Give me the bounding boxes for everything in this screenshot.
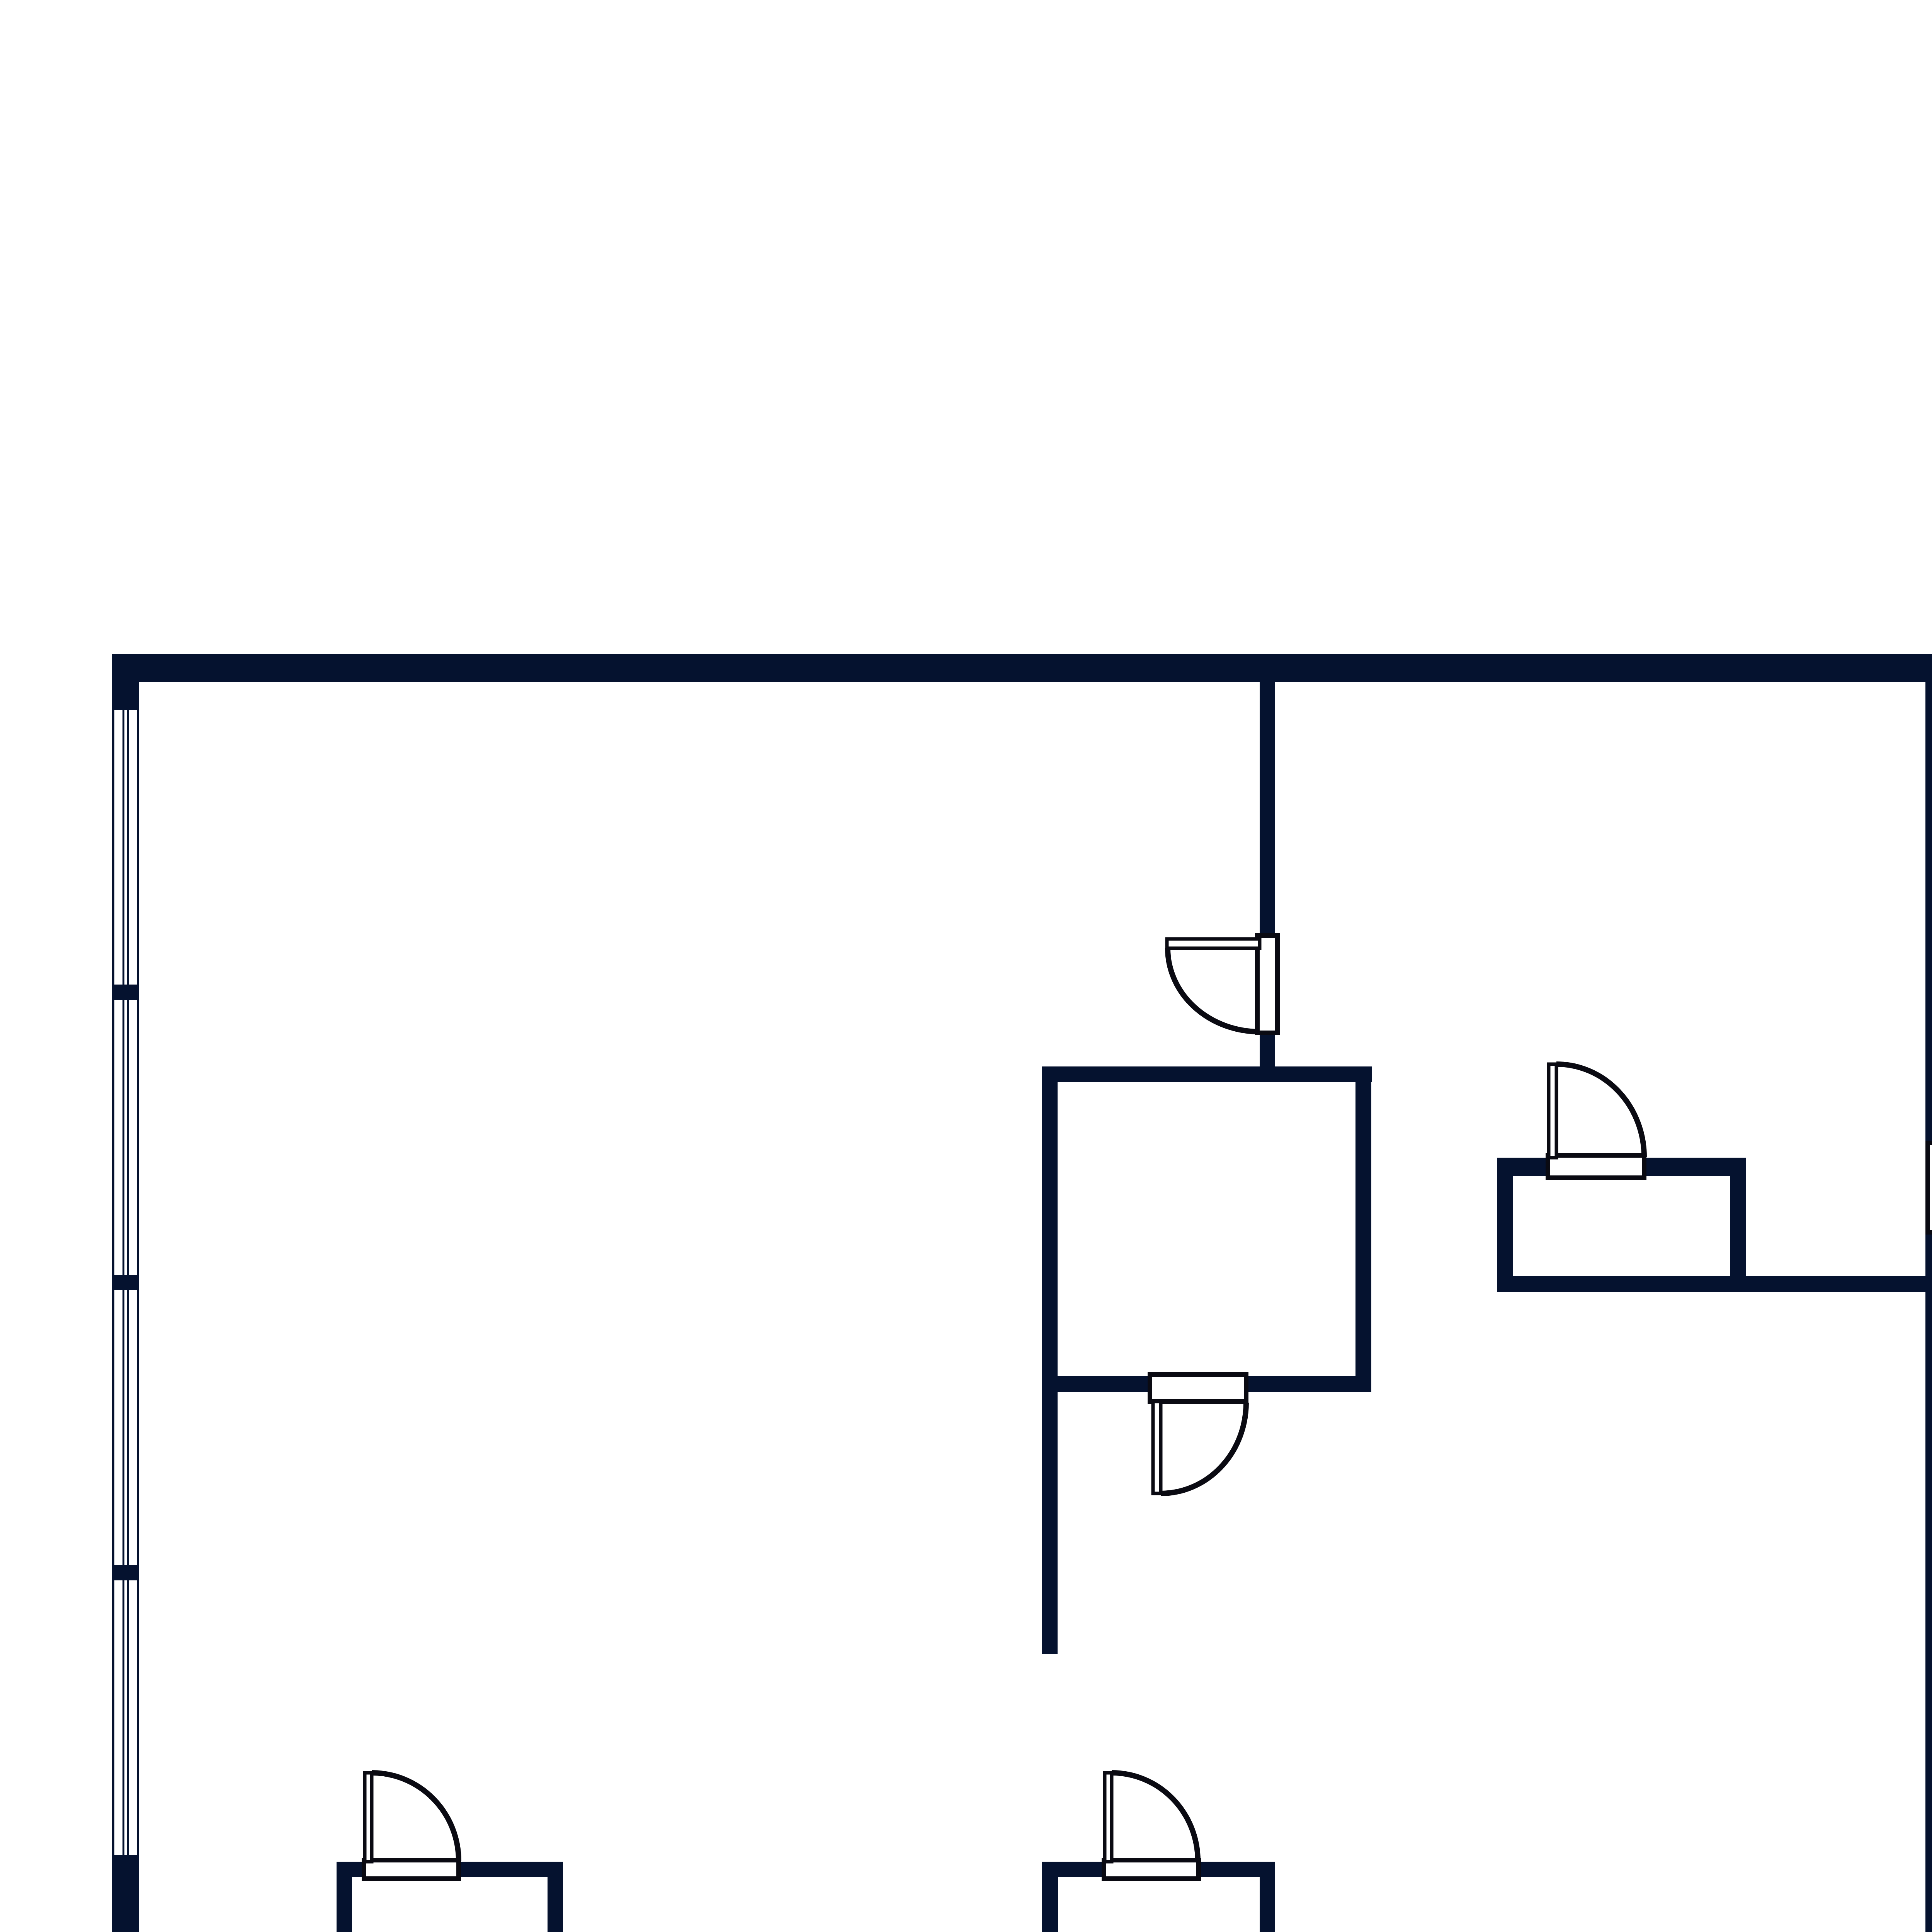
door-right-room [1548,1064,1644,1178]
wall-left-top [112,654,139,708]
wall-left-vestibule-right [548,1877,563,1932]
door-right-exterior-frame [1928,1143,1932,1232]
door-hall [1167,935,1277,1033]
wall-left-mullion-2 [112,1277,139,1288]
window-left-3 [112,1288,139,1567]
door-square-room-leaf [1153,1401,1161,1493]
floor-plan [0,0,1932,1932]
wall-square-room-top [1042,1066,1372,1082]
wall-right-room-left [1497,1158,1513,1292]
door-square-room-arc-icon [1161,1403,1246,1493]
door-right-room-arc-icon [1556,1064,1644,1157]
door-vestibule-center-interior-leaf [1105,1773,1112,1862]
door-vestibule-left-interior-leaf [365,1773,372,1862]
wall-left-bottom [112,1857,139,1932]
door-right-room-leaf [1549,1064,1556,1158]
wall-center-vestibule-top-b [1199,1862,1275,1877]
door-vestibule-center-interior-arc-icon [1112,1773,1198,1861]
exterior-walls [112,654,1932,1932]
wall-left-vestibule-top-b [459,1862,563,1877]
window-left-2 [112,998,139,1277]
door-vestibule-center-interior-frame [1104,1860,1199,1879]
wall-left-vestibule-top-a [337,1862,364,1877]
door-square-room-frame [1150,1374,1246,1401]
wall-square-room-right [1355,1082,1371,1392]
door-vestibule-left-interior [364,1773,459,1879]
door-right-exterior [1925,1142,1932,1233]
wall-right-room-bottom [1497,1276,1925,1292]
door-right-room-frame [1548,1155,1644,1178]
wall-left-mullion-3 [112,1567,139,1578]
wall-center-vestibule-right [1260,1877,1275,1932]
wall-right-room-right [1730,1176,1746,1292]
door-hall-leaf [1167,939,1260,948]
wall-square-room-bottom-right [1246,1376,1371,1392]
door-hall-frame [1257,935,1277,1033]
wall-square-room-left [1042,1082,1058,1654]
door-vestibule-center-interior [1104,1773,1199,1879]
door-vestibule-left-interior-arc-icon [372,1773,459,1861]
wall-right-room-top-left [1497,1158,1548,1176]
wall-right-room-top-right [1644,1158,1746,1176]
door-square-room [1150,1374,1246,1493]
wall-top [112,654,1932,682]
door-hall-arc-icon [1168,948,1259,1032]
wall-left-mullion-1 [112,986,139,998]
interior-walls [337,682,1925,1932]
wall-hall-divider-stub [1260,1033,1275,1066]
window-left-1 [112,708,139,986]
wall-right-lower [1925,1233,1932,1932]
wall-right-upper [1925,654,1932,1142]
door-vestibule-left-interior-frame [364,1860,459,1879]
wall-center-vestibule-top-a [1042,1862,1104,1877]
window-left-4 [112,1578,139,1857]
wall-hall-divider-upper [1260,682,1275,935]
wall-square-room-bottom-left [1042,1376,1150,1392]
